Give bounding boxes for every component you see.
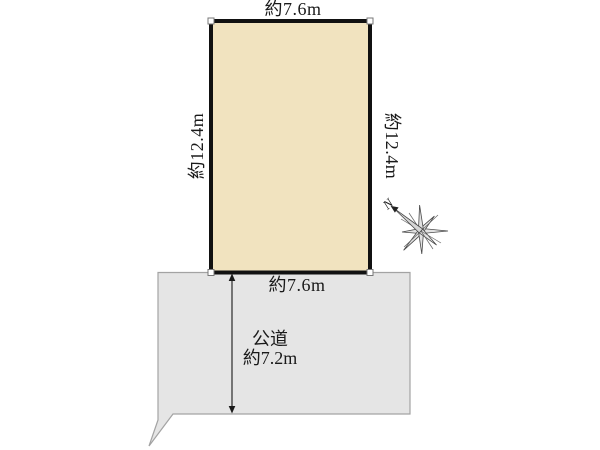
lot-area [211,21,370,273]
lot-bottom-dimension-label: 約7.6m [227,275,367,295]
corner-marker [208,18,214,24]
lot-top-dimension-label: 約7.6m [223,0,363,19]
lot-left-dimension-label: 約12.4m [187,76,207,216]
lot-right-dimension-label: 約12.4m [382,76,402,216]
road-width: 約7.2m [200,349,340,368]
site-plan-canvas: N [0,0,600,450]
road-label: 公道 約7.2m [200,330,340,368]
site-plan-diagram: N 約7.6m 約7.6m 約12.4m 約12.4m 公道 約7.2m [0,0,600,450]
corner-marker [367,270,373,276]
road-name: 公道 [200,330,340,349]
corner-marker [208,270,214,276]
corner-marker [367,18,373,24]
